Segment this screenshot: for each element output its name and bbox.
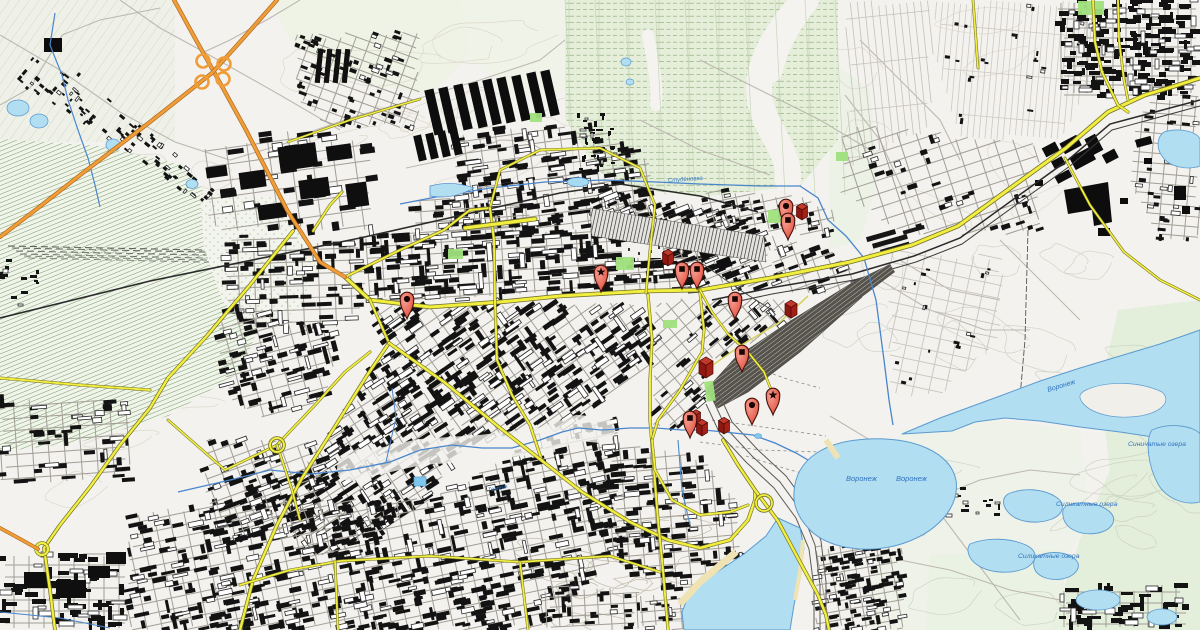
svg-text:Воронеж: Воронеж [846, 474, 878, 483]
svg-text:Силикатные озера: Силикатные озера [1056, 501, 1118, 508]
svg-text:Воронеж: Воронеж [896, 474, 928, 483]
svg-text:Силикатные озера: Силикатные озера [1018, 553, 1080, 560]
svg-text:Синичатые озера: Синичатые озера [1128, 441, 1186, 448]
